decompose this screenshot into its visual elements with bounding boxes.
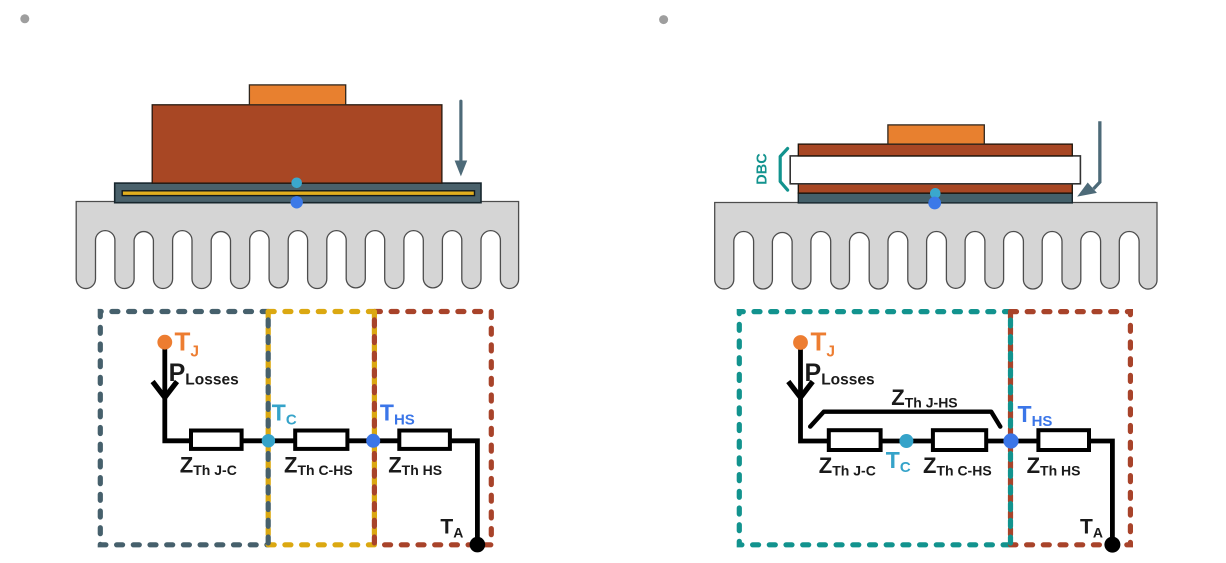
svg-text:ZTh C-HS: ZTh C-HS (923, 453, 992, 479)
svg-text:TA: TA (1080, 515, 1103, 540)
svg-text:PLosses: PLosses (805, 359, 875, 389)
svg-text:THS: THS (1018, 401, 1053, 430)
svg-text:ZTh J-C: ZTh J-C (819, 453, 876, 479)
svg-text:TC: TC (272, 400, 297, 429)
svg-text:TC: TC (886, 447, 911, 476)
svg-text:DBC: DBC (755, 153, 771, 185)
svg-text:TA: TA (440, 515, 463, 540)
svg-text:PLosses: PLosses (169, 359, 239, 389)
svg-text:ZTh J-C: ZTh J-C (180, 453, 237, 479)
svg-text:TJ: TJ (175, 326, 200, 360)
svg-text:ZTh C-HS: ZTh C-HS (284, 453, 353, 479)
svg-text:TJ: TJ (811, 327, 836, 361)
svg-text:ZTh HS: ZTh HS (388, 453, 442, 479)
svg-text:THS: THS (380, 400, 415, 429)
svg-text:ZTh J-HS: ZTh J-HS (891, 385, 957, 411)
svg-text:ZTh HS: ZTh HS (1027, 453, 1081, 479)
